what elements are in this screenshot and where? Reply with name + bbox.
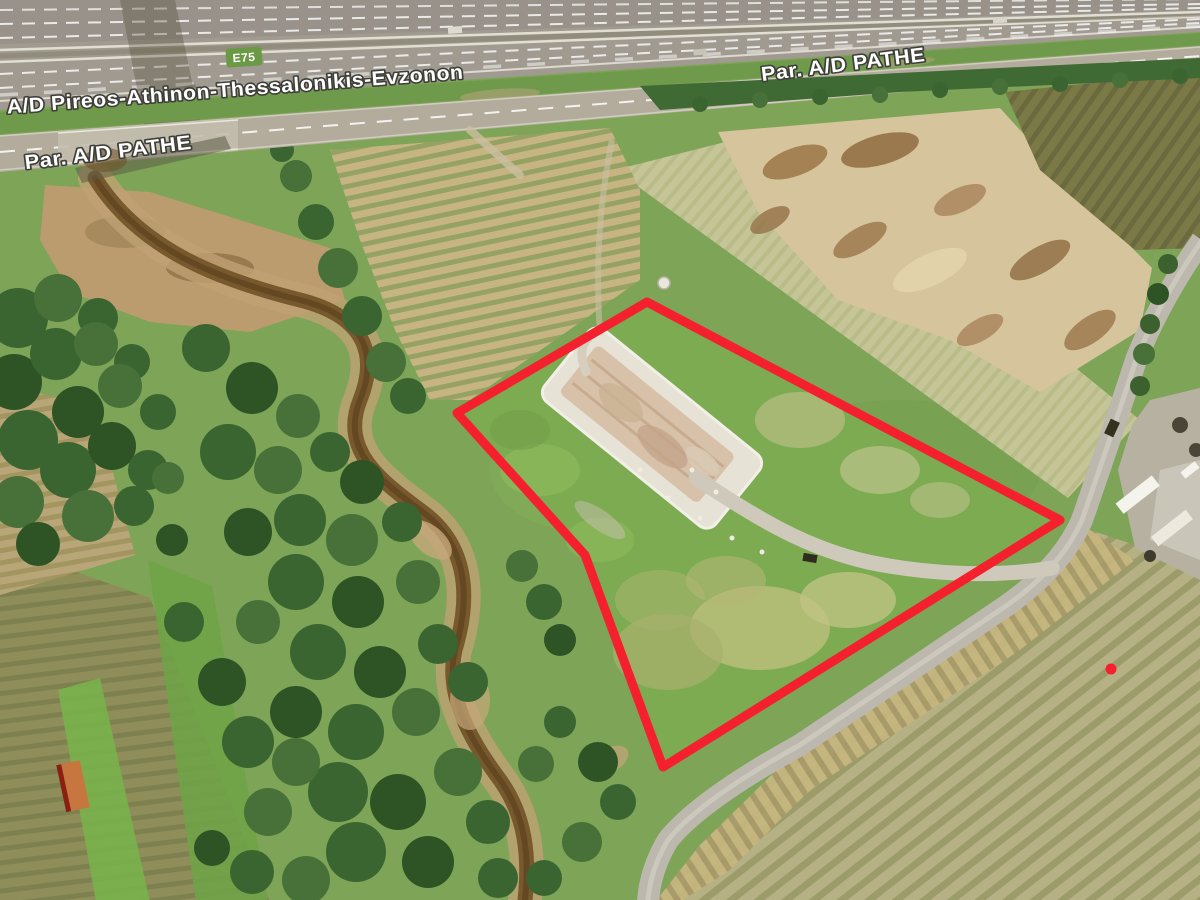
map-canvas: A/D Pireos-Athinon-Thessalonikis-Evzonon… bbox=[0, 0, 1200, 900]
route-badge-label: E75 bbox=[232, 50, 256, 66]
route-badge-e75: E75 bbox=[225, 46, 262, 67]
aerial-map-view[interactable]: A/D Pireos-Athinon-Thessalonikis-Evzonon… bbox=[0, 0, 1200, 900]
vehicle bbox=[693, 49, 706, 56]
round-tank bbox=[658, 277, 670, 289]
vehicle bbox=[448, 26, 462, 34]
location-dot[interactable] bbox=[1106, 664, 1117, 675]
vehicle bbox=[993, 17, 1007, 24]
